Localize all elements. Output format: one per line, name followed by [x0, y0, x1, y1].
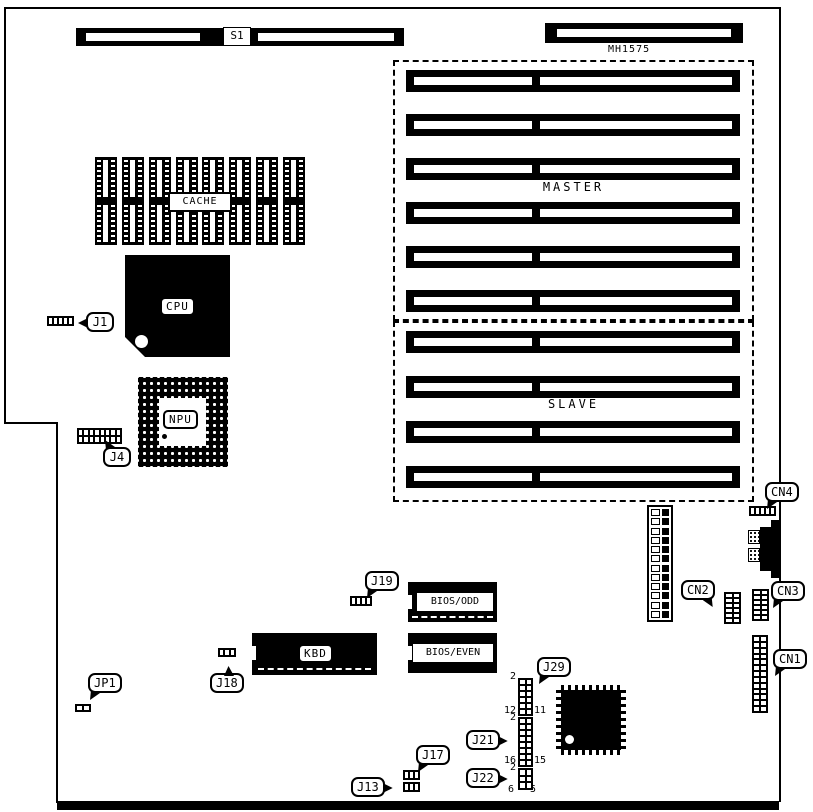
pin — [520, 692, 525, 696]
pin — [520, 704, 525, 708]
j4-header — [77, 428, 122, 444]
pin — [651, 518, 660, 525]
pin — [231, 650, 234, 655]
pin — [754, 660, 759, 664]
pin — [64, 318, 67, 324]
pin — [117, 430, 120, 435]
chip-dash-line — [412, 616, 493, 618]
chip-notch — [252, 646, 256, 660]
bios-odd-label: BIOS/ODD — [417, 593, 493, 611]
pin — [357, 598, 360, 604]
callout-jp1: JP1 — [88, 673, 122, 693]
pin — [527, 737, 532, 741]
chip-dash-line — [258, 668, 371, 670]
pin — [734, 599, 740, 602]
callout-tail — [539, 674, 549, 684]
callout-label: CN2 — [687, 583, 709, 597]
callout-label: J17 — [422, 748, 444, 762]
pin — [734, 604, 740, 607]
board-edge-left-upper — [4, 7, 6, 424]
pin — [754, 611, 760, 614]
kbd-label: KBD — [298, 644, 333, 663]
pin — [520, 755, 525, 759]
pin — [527, 770, 532, 775]
pin — [520, 686, 525, 690]
board-edge-left-lower — [56, 422, 58, 803]
pin — [101, 430, 104, 435]
pin — [651, 546, 660, 553]
callout-tail — [498, 774, 508, 784]
pin — [662, 565, 669, 572]
pin — [352, 598, 355, 604]
pin — [520, 680, 525, 684]
cache-chip — [256, 205, 278, 242]
cpu-pin1-dot — [135, 335, 148, 348]
pin — [761, 637, 766, 641]
cache-chip — [95, 205, 117, 242]
pin — [762, 591, 768, 594]
pin — [527, 743, 532, 747]
pin — [762, 611, 768, 614]
pin — [651, 565, 660, 572]
callout-j18: J18 — [210, 673, 244, 693]
pin — [761, 655, 766, 659]
expansion-slot — [406, 290, 740, 312]
pin — [106, 430, 109, 435]
callout-cn2: CN2 — [681, 580, 715, 600]
pin — [111, 430, 114, 435]
pin — [662, 602, 669, 609]
pin — [527, 692, 532, 696]
pin — [754, 695, 759, 699]
pin — [527, 686, 532, 690]
pin — [49, 318, 52, 324]
pin — [726, 594, 732, 597]
expansion-slot — [406, 202, 740, 224]
expansion-slot — [406, 421, 740, 443]
npu-label: NPU — [163, 410, 198, 429]
pin — [84, 430, 87, 435]
npu-pin1-dot — [162, 434, 167, 439]
pin — [410, 784, 413, 790]
qfp-pin1-dot — [565, 735, 574, 744]
pin — [662, 583, 669, 590]
callout-label: J21 — [472, 733, 494, 747]
pin — [225, 650, 228, 655]
pin — [520, 737, 525, 741]
callout-tail — [367, 588, 377, 598]
board-edge-bottom-bar — [57, 801, 779, 810]
expansion-slot — [406, 158, 740, 180]
board-edge-right — [779, 7, 781, 802]
callout-label: JP1 — [94, 676, 116, 690]
j1-jumper — [47, 316, 74, 326]
pin — [405, 784, 408, 790]
pin — [527, 719, 532, 723]
pin — [410, 772, 413, 778]
pin — [527, 710, 532, 714]
pin — [527, 680, 532, 684]
pin — [734, 619, 740, 622]
pin — [220, 650, 223, 655]
pin — [754, 606, 760, 609]
callout-tail — [224, 666, 234, 676]
expansion-slot — [406, 246, 740, 268]
callout-j13: J13 — [351, 777, 385, 797]
pin — [84, 706, 89, 710]
pin — [734, 594, 740, 597]
callout-label: J22 — [472, 771, 494, 785]
pin — [771, 508, 774, 514]
pin — [651, 611, 660, 618]
pin — [754, 591, 760, 594]
callout-label: J19 — [371, 574, 393, 588]
jp1-jumper — [75, 704, 91, 712]
pin — [54, 318, 57, 324]
din-pin-block — [748, 548, 760, 562]
mh1575-label: MH1575 — [608, 44, 688, 55]
cpu-label: CPU — [160, 297, 195, 316]
pin — [734, 609, 740, 612]
pin — [761, 701, 766, 705]
j19-jumper — [350, 596, 372, 606]
s1-slot: S1 — [76, 28, 404, 46]
pin — [754, 684, 759, 688]
pin — [726, 609, 732, 612]
callout-cn1: CN1 — [773, 649, 807, 669]
kbd-controller-chip: KBD — [252, 633, 377, 675]
mh1575-slot — [545, 23, 743, 43]
cn2-header — [724, 592, 741, 624]
pin — [79, 437, 82, 442]
pin — [756, 508, 759, 514]
qfp-chip — [556, 685, 626, 755]
pin — [662, 518, 669, 525]
pin — [117, 437, 120, 442]
pin — [527, 704, 532, 708]
pin — [651, 583, 660, 590]
expansion-slot — [406, 114, 740, 136]
pin — [520, 761, 525, 765]
pin — [520, 725, 525, 729]
expansion-slot — [406, 70, 740, 92]
cpu-chip: CPU — [125, 255, 230, 357]
pin — [754, 596, 760, 599]
pin-number: 6 — [502, 784, 514, 795]
pin — [527, 698, 532, 702]
cache-chip — [229, 160, 251, 197]
pin-number: 2 — [504, 762, 516, 773]
pin — [754, 690, 759, 694]
npu-core: NPU — [159, 398, 206, 446]
pin — [726, 619, 732, 622]
s1-label: S1 — [223, 27, 251, 46]
din-flange — [771, 520, 779, 578]
callout-tail — [78, 318, 88, 328]
pin — [754, 672, 759, 676]
cache-chip — [283, 160, 305, 197]
callout-tail — [383, 783, 393, 793]
pin — [527, 761, 532, 765]
pin — [761, 707, 766, 711]
cache-chip-column — [95, 157, 117, 245]
pin — [751, 508, 754, 514]
pin — [651, 602, 660, 609]
pin — [69, 318, 72, 324]
cache-chip — [122, 160, 144, 197]
cache-chip — [95, 160, 117, 197]
slave-label: SLAVE — [395, 397, 752, 411]
pin — [761, 690, 766, 694]
pin — [95, 437, 98, 442]
pin — [726, 614, 732, 617]
pin — [520, 777, 525, 782]
pin — [662, 611, 669, 618]
pin — [651, 509, 660, 516]
pin — [726, 599, 732, 602]
pin — [762, 596, 768, 599]
pin — [754, 601, 760, 604]
pin — [651, 528, 660, 535]
callout-j22: J22 — [466, 768, 500, 788]
cache-chip — [122, 205, 144, 242]
pin — [662, 592, 669, 599]
cache-chip — [283, 205, 305, 242]
pin — [520, 698, 525, 702]
cache-chip — [256, 160, 278, 197]
pin — [761, 684, 766, 688]
callout-label: J13 — [357, 780, 379, 794]
chip-notch — [408, 646, 412, 660]
pin — [59, 318, 62, 324]
j21-header — [518, 717, 533, 767]
callout-tail — [498, 736, 508, 746]
pin — [662, 528, 669, 535]
pin — [520, 749, 525, 753]
callout-tail — [418, 762, 428, 772]
pin — [520, 710, 525, 714]
pin — [527, 731, 532, 735]
callout-j21: J21 — [466, 730, 500, 750]
pin — [762, 601, 768, 604]
pin — [527, 725, 532, 729]
pin — [662, 546, 669, 553]
callout-cn4: CN4 — [765, 482, 799, 502]
pin — [95, 430, 98, 435]
pin-number: 15 — [534, 755, 552, 766]
cn3-header — [752, 589, 769, 621]
cache-chip — [229, 205, 251, 242]
pin — [754, 649, 759, 653]
din-pin-block — [748, 530, 760, 544]
keyboard-din-connector — [747, 520, 780, 578]
master-label: MASTER — [395, 180, 752, 194]
pin — [415, 784, 418, 790]
motherboard-diagram: S1 MH1575 MASTER SLAVE CACHE CPU NPU BIO… — [0, 0, 813, 812]
callout-label: CN3 — [777, 584, 799, 598]
pin — [762, 616, 768, 619]
board-edge-top — [4, 7, 781, 9]
pin — [761, 649, 766, 653]
pin — [520, 770, 525, 775]
callout-label: J1 — [93, 315, 107, 329]
master-slot-bank: MASTER — [393, 60, 754, 321]
callout-cn3: CN3 — [771, 581, 805, 601]
pin — [754, 616, 760, 619]
chip-notch — [408, 595, 412, 609]
cn1-header — [752, 635, 768, 713]
pin — [367, 598, 370, 604]
pin — [111, 437, 114, 442]
pin — [726, 604, 732, 607]
pin — [734, 614, 740, 617]
pin — [662, 555, 669, 562]
pin-number: 11 — [534, 705, 552, 716]
cache-chip-column — [256, 157, 278, 245]
pin — [520, 719, 525, 723]
j29-header — [518, 678, 533, 716]
cn4-jumper — [749, 506, 776, 516]
callout-label: CN4 — [771, 485, 793, 499]
npu-socket: NPU — [138, 377, 228, 467]
expansion-slot — [406, 466, 740, 488]
pin — [761, 643, 766, 647]
pin — [651, 592, 660, 599]
cache-chip-column — [122, 157, 144, 245]
board-edge-step — [4, 422, 58, 424]
pin — [754, 655, 759, 659]
pin — [520, 743, 525, 747]
pin — [754, 701, 759, 705]
pin — [754, 643, 759, 647]
callout-tail — [703, 597, 713, 607]
pin — [761, 660, 766, 664]
callout-tail — [773, 598, 783, 608]
pin — [651, 574, 660, 581]
pin — [761, 508, 764, 514]
j13-jumper — [403, 782, 420, 792]
pin — [520, 731, 525, 735]
pin — [766, 508, 769, 514]
pin — [527, 749, 532, 753]
pin — [662, 574, 669, 581]
pin — [84, 437, 87, 442]
callout-label: J29 — [543, 660, 565, 674]
callout-j4: J4 — [103, 447, 131, 467]
expansion-slot — [406, 331, 740, 353]
pin — [527, 777, 532, 782]
power-connector — [647, 505, 673, 622]
bios-even-label: BIOS/EVEN — [413, 644, 493, 662]
pin — [101, 437, 104, 442]
callout-j29: J29 — [537, 657, 571, 677]
bios-even-chip: BIOS/EVEN — [408, 633, 497, 673]
bios-odd-chip: BIOS/ODD — [408, 582, 497, 622]
pin — [362, 598, 365, 604]
pin — [761, 666, 766, 670]
j18-jumper — [218, 648, 236, 657]
pin — [651, 555, 660, 562]
callout-j1: J1 — [86, 312, 114, 332]
callout-label: CN1 — [779, 652, 801, 666]
cache-label: CACHE — [168, 192, 232, 212]
pin — [520, 783, 525, 788]
pin — [90, 430, 93, 435]
pin — [761, 678, 766, 682]
pin-number: 2 — [504, 671, 516, 682]
callout-j19: J19 — [365, 571, 399, 591]
pin — [761, 672, 766, 676]
pin — [405, 772, 408, 778]
expansion-slot — [406, 376, 740, 398]
pin — [761, 695, 766, 699]
pin — [662, 509, 669, 516]
pin — [415, 772, 418, 778]
callout-label: J18 — [216, 676, 238, 690]
pin-number: 5 — [530, 784, 542, 795]
pin — [79, 430, 82, 435]
pin — [527, 755, 532, 759]
pin — [90, 437, 93, 442]
pin — [754, 666, 759, 670]
pin — [754, 678, 759, 682]
pin — [651, 537, 660, 544]
pin — [754, 707, 759, 711]
pin — [77, 706, 82, 710]
pin — [662, 537, 669, 544]
slave-slot-bank: SLAVE — [393, 321, 754, 502]
callout-j17: J17 — [416, 745, 450, 765]
callout-tail — [90, 690, 100, 700]
cache-chip-column — [229, 157, 251, 245]
pin-number: 2 — [504, 712, 516, 723]
pin — [762, 606, 768, 609]
pin — [754, 637, 759, 641]
cache-chip-column — [283, 157, 305, 245]
j17-jumper — [403, 770, 420, 780]
callout-label: J4 — [110, 450, 124, 464]
